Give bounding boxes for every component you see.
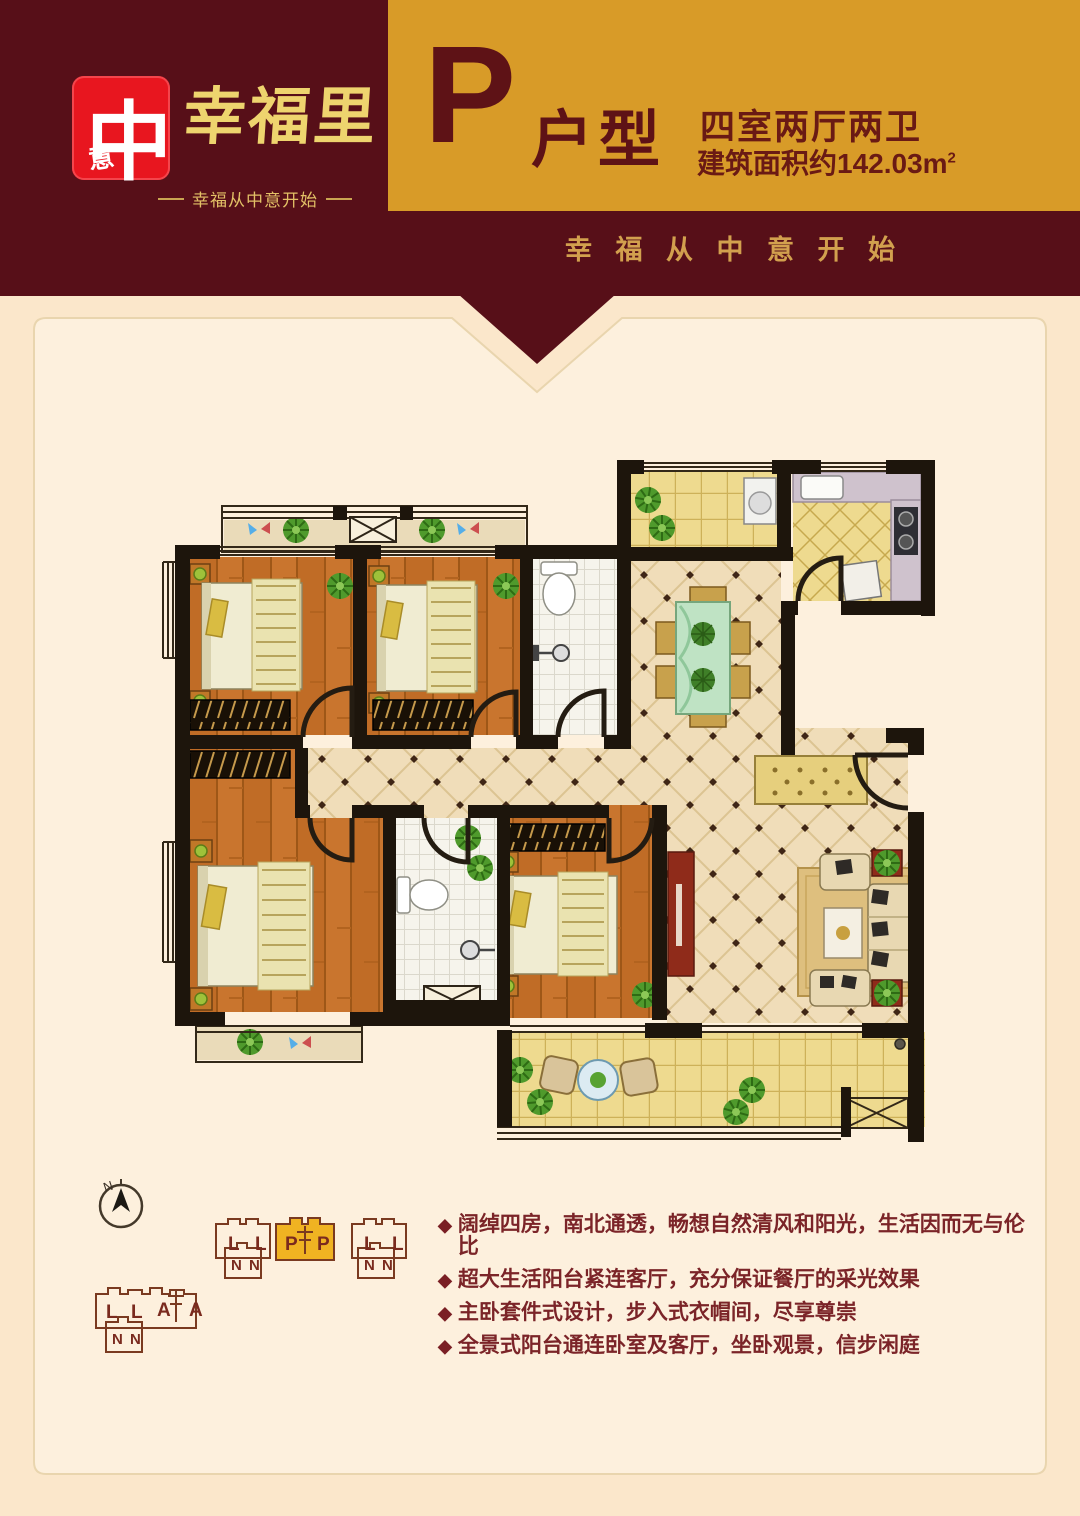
- svg-text:L: L: [106, 1302, 118, 1323]
- chevron-down-icon: [458, 294, 616, 364]
- svg-text:L: L: [392, 1234, 404, 1255]
- site-sub-labels: NN NN NN: [112, 1257, 393, 1348]
- svg-text:N: N: [231, 1257, 242, 1274]
- dining-table: [676, 602, 730, 714]
- feature-text: 超大生活阳台紧连客厅，充分保证餐厅的采光效果: [458, 1269, 920, 1291]
- feature-list: ◆阔绰四房，南北通透，畅想自然清风和阳光，生活因而无与伦比 ◆超大生活阳台紧连客…: [438, 1214, 1038, 1368]
- site-plan: N LL PP LL LLAA NN NN NN: [80, 1168, 480, 1378]
- diamond-bullet-icon: ◆: [438, 1269, 452, 1291]
- shower-icon: [553, 645, 569, 661]
- feature-item: ◆超大生活阳台紧连客厅，充分保证餐厅的采光效果: [438, 1269, 1038, 1291]
- feature-text: 主卧套件式设计，步入式衣帽间，尽享尊崇: [458, 1302, 857, 1324]
- floor-plan: [150, 442, 960, 1162]
- svg-text:A: A: [189, 1300, 203, 1321]
- svg-text:N: N: [249, 1257, 260, 1274]
- foyer-mat: [755, 756, 867, 804]
- svg-text:P: P: [285, 1234, 298, 1255]
- compass-label: N: [101, 1178, 115, 1195]
- shower-icon: [461, 941, 479, 959]
- feature-text: 全景式阳台通连卧室及客厅，坐卧观景，信步闲庭: [458, 1335, 920, 1357]
- toilet-icon: [543, 573, 575, 615]
- kitchen-sink: [801, 476, 843, 499]
- loveseat: [810, 970, 870, 1006]
- wardrobe: [190, 751, 290, 778]
- balcony-chair: [619, 1057, 658, 1096]
- floor-drain: [895, 1039, 905, 1049]
- wardrobe: [190, 700, 290, 730]
- diamond-bullet-icon: ◆: [438, 1335, 452, 1357]
- svg-text:N: N: [130, 1331, 141, 1348]
- feature-item: ◆主卧套件式设计，步入式衣帽间，尽享尊崇: [438, 1302, 1038, 1324]
- svg-text:L: L: [255, 1234, 267, 1255]
- svg-text:P: P: [317, 1234, 330, 1255]
- svg-text:N: N: [112, 1331, 123, 1348]
- svg-text:L: L: [131, 1302, 143, 1323]
- svg-text:L: L: [364, 1234, 376, 1255]
- poster: 中 意 幸福里 幸福从中意开始 P 户型 四室两厅两卫 建筑面积约142.03m…: [0, 0, 1080, 1516]
- svg-text:N: N: [364, 1257, 375, 1274]
- diamond-bullet-icon: ◆: [438, 1302, 452, 1324]
- svg-text:A: A: [157, 1300, 171, 1321]
- compass-icon: N: [100, 1178, 142, 1227]
- svg-text:L: L: [228, 1234, 240, 1255]
- toilet-icon: [410, 880, 448, 910]
- site-buildings: [96, 1218, 406, 1352]
- wardrobe: [505, 824, 605, 851]
- feature-text: 阔绰四房，南北通透，畅想自然清风和阳光，生活因而无与伦比: [458, 1214, 1038, 1258]
- svg-text:N: N: [382, 1257, 393, 1274]
- wardrobe: [373, 700, 473, 730]
- feature-item: ◆全景式阳台通连卧室及客厅，坐卧观景，信步闲庭: [438, 1335, 1038, 1357]
- feature-item: ◆阔绰四房，南北通透，畅想自然清风和阳光，生活因而无与伦比: [438, 1214, 1038, 1258]
- kitchen-cabinet: [841, 561, 882, 602]
- diamond-bullet-icon: ◆: [438, 1214, 452, 1236]
